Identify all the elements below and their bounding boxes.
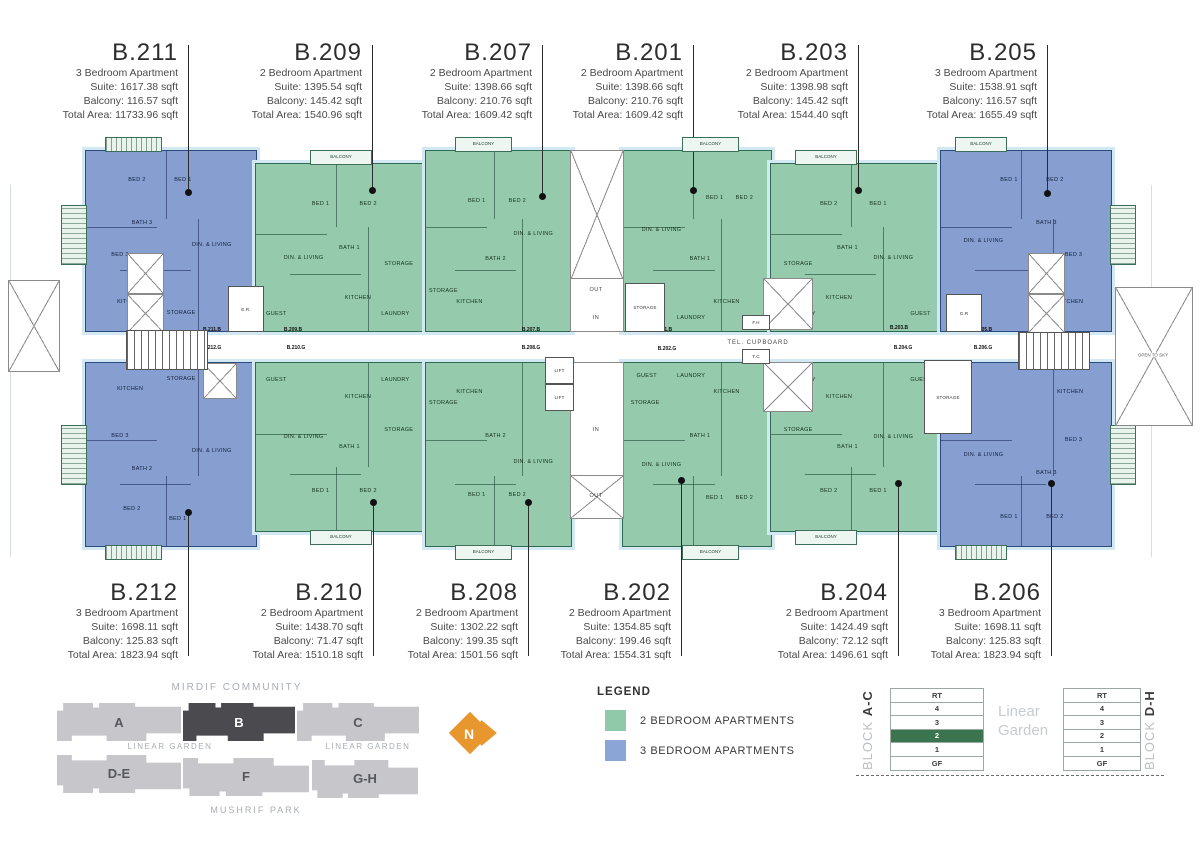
unit-id-label: B.208 <box>348 580 518 606</box>
unit-door-label: B.210.G <box>287 345 306 351</box>
room-label: DIN. & LIVING <box>284 255 324 261</box>
floor-row-rt: RT <box>1064 689 1140 703</box>
unit-stat-line: Total Area: 1554.31 sqft <box>501 648 671 662</box>
room-label: STORAGE <box>784 261 813 267</box>
unit-stat-line: 2 Bedroom Apartment <box>513 66 683 80</box>
partition-wall <box>336 164 337 227</box>
room-label: KITCHEN <box>826 394 852 400</box>
room-label: BED 1 <box>1000 514 1017 520</box>
room-label: LAUNDRY <box>381 311 409 317</box>
unit-stat-line: Balcony: 210.76 sqft <box>362 94 532 108</box>
room-label: BED 2 <box>509 198 526 204</box>
room-label: BED 2 <box>359 201 376 207</box>
leader-dot <box>690 187 697 194</box>
room-label: BED 1 <box>468 198 485 204</box>
leader-dot <box>369 187 376 194</box>
unit-stat-line: Total Area: 1501.56 sqft <box>348 648 518 662</box>
partition-wall <box>166 151 167 219</box>
room-label: KITCHEN <box>345 295 371 301</box>
partition-wall <box>120 484 191 485</box>
unit-stat-line: 3 Bedroom Apartment <box>8 606 178 620</box>
balcony-tab: BALCONY <box>955 137 1007 152</box>
unit-stat-line: 2 Bedroom Apartment <box>193 606 363 620</box>
room-label: STORAGE <box>384 261 413 267</box>
legend-swatch <box>605 710 626 731</box>
balcony-tab: BALCONY <box>455 545 512 560</box>
room-label: BED 3 <box>1065 437 1082 443</box>
room-label: BED 2 <box>123 506 140 512</box>
unit-stat-line: Balcony: 116.57 sqft <box>8 94 178 108</box>
unit-info-b204: B.2042 Bedroom ApartmentSuite: 1424.49 s… <box>718 580 888 662</box>
leader-dot <box>185 509 192 516</box>
room-label: KITCHEN <box>456 299 482 305</box>
room-label: DIN. & LIVING <box>874 434 914 440</box>
leader-line <box>1047 45 1048 193</box>
partition-wall <box>771 434 842 435</box>
unit-stat-line: 2 Bedroom Apartment <box>348 606 518 620</box>
balcony-tab <box>1110 205 1136 265</box>
room-label: STORAGE <box>631 400 660 406</box>
unit-id-label: B.201 <box>513 40 683 66</box>
room-label: DIN. & LIVING <box>964 238 1004 244</box>
open-to-sky-box <box>127 253 164 294</box>
room-label: LAUNDRY <box>677 373 705 379</box>
partition-wall <box>494 151 495 219</box>
service-box-lift: LIFT <box>545 384 574 411</box>
unit-stat-line: Total Area: 1609.42 sqft <box>513 108 683 122</box>
unit-stat-line: 2 Bedroom Apartment <box>362 66 532 80</box>
room-label: BED 2 <box>128 177 145 183</box>
balcony-tab <box>955 545 1007 560</box>
staircase-right <box>1018 332 1090 370</box>
room-label: STORAGE <box>167 376 196 382</box>
partition-wall <box>1053 363 1054 476</box>
room-label: LAUNDRY <box>677 315 705 321</box>
linear-garden-label: LinearGarden <box>998 702 1048 740</box>
partition-wall <box>1021 151 1022 219</box>
unit-stat-line: Total Area: 1544.40 sqft <box>678 108 848 122</box>
unit-stat-line: Balcony: 72.12 sqft <box>718 634 888 648</box>
partition-wall <box>198 363 199 476</box>
room-label: KITCHEN <box>345 394 371 400</box>
partition-wall <box>290 474 361 475</box>
partition-wall <box>198 219 199 331</box>
partition-wall <box>941 440 1012 441</box>
balcony-tab <box>61 425 87 485</box>
partition-wall <box>653 484 715 485</box>
room-label: BED 1 <box>706 495 723 501</box>
unit-stat-line: Balcony: 199.35 sqft <box>348 634 518 648</box>
unit-stat-line: 3 Bedroom Apartment <box>8 66 178 80</box>
balcony-tab: BALCONY <box>682 137 739 152</box>
unit-stat-line: Total Area: 1510.18 sqft <box>193 648 363 662</box>
room-label: BATH 1 <box>837 245 858 251</box>
partition-wall <box>975 484 1046 485</box>
room-label: BED 2 <box>736 495 753 501</box>
floor-row-gf: GF <box>891 757 983 771</box>
room-label: BED 1 <box>706 195 723 201</box>
room-label: BATH 2 <box>132 466 153 472</box>
unit-id-label: B.209 <box>192 40 362 66</box>
open-to-sky-box <box>203 363 237 399</box>
open-to-sky-box <box>1028 253 1065 294</box>
open-to-sky-label: OPEN TO SKY <box>1136 353 1170 358</box>
unit-b209: BED 1BED 2BATH 1DIN. & LIVINGSTORAGEKITC… <box>255 163 427 332</box>
room-label: BED 1 <box>1000 177 1017 183</box>
unit-stat-line: Balcony: 145.42 sqft <box>192 94 362 108</box>
room-label: KITCHEN <box>456 389 482 395</box>
partition-wall <box>86 440 157 441</box>
unit-stat-line: Suite: 1395.54 sqft <box>192 80 362 94</box>
leader-dot <box>185 189 192 196</box>
unit-stat-line: Total Area: 1823.94 sqft <box>8 648 178 662</box>
open-to-sky-box <box>1028 294 1065 333</box>
unit-id-label: B.206 <box>871 580 1041 606</box>
partition-wall <box>805 474 876 475</box>
shaft-out-label-2: OUT <box>589 493 602 499</box>
partition-wall <box>721 363 722 476</box>
unit-stat-line: 2 Bedroom Apartment <box>192 66 362 80</box>
partition-wall <box>653 270 715 271</box>
room-label: GUEST <box>266 311 286 317</box>
room-label: DIN. & LIVING <box>513 231 553 237</box>
balcony-tab <box>61 205 87 265</box>
partition-wall <box>256 234 327 235</box>
unit-id-label: B.210 <box>193 580 363 606</box>
partition-wall <box>883 363 884 467</box>
service-box-tc: T.C <box>742 349 770 364</box>
unit-stat-line: Balcony: 145.42 sqft <box>678 94 848 108</box>
unit-stat-line: Balcony: 71.47 sqft <box>193 634 363 648</box>
unit-stat-line: Suite: 1698.11 sqft <box>871 620 1041 634</box>
partition-wall <box>851 467 852 531</box>
room-label: DIN. & LIVING <box>964 452 1004 458</box>
room-label: BATH 1 <box>339 444 360 450</box>
unit-stat-line: Suite: 1538.91 sqft <box>867 80 1037 94</box>
legend-label: 3 BEDROOM APARTMENTS <box>640 745 795 757</box>
site-map-garden-left-label: LINEAR GARDEN <box>128 742 213 751</box>
floor-table-right: RT4321GF <box>1063 688 1141 771</box>
leader-dot <box>539 193 546 200</box>
room-label: STORAGE <box>429 288 458 294</box>
unit-stat-line: Balcony: 210.76 sqft <box>513 94 683 108</box>
unit-stat-line: Suite: 1398.98 sqft <box>678 80 848 94</box>
unit-info-b205: B.2053 Bedroom ApartmentSuite: 1538.91 s… <box>867 40 1037 122</box>
room-label: GUEST <box>910 311 930 317</box>
room-label: BED 3 <box>111 433 128 439</box>
leader-line <box>188 45 189 192</box>
legend-title: LEGEND <box>597 686 651 698</box>
service-box-gr: G.R <box>946 294 982 332</box>
unit-info-b210: B.2102 Bedroom ApartmentSuite: 1438.70 s… <box>193 580 363 662</box>
unit-id-label: B.204 <box>718 580 888 606</box>
room-label: KITCHEN <box>713 389 739 395</box>
floor-row-3: 3 <box>891 716 983 730</box>
leader-dot <box>525 499 532 506</box>
unit-b207: BED 1BED 2DIN. & LIVINGBATH 2STORAGEKITC… <box>425 150 572 332</box>
partition-wall <box>1021 476 1022 546</box>
balcony-tab <box>105 545 162 560</box>
room-label: BED 2 <box>509 492 526 498</box>
unit-info-b207: B.2072 Bedroom ApartmentSuite: 1398.66 s… <box>362 40 532 122</box>
unit-stat-line: Suite: 1398.66 sqft <box>513 80 683 94</box>
unit-info-b206: B.2063 Bedroom ApartmentSuite: 1698.11 s… <box>871 580 1041 662</box>
room-label: LAUNDRY <box>381 377 409 383</box>
unit-id-label: B.212 <box>8 580 178 606</box>
room-label: BATH 3 <box>132 220 153 226</box>
unit-door-label: B.207.B <box>522 327 540 333</box>
room-label: STORAGE <box>784 427 813 433</box>
leader-dot <box>895 480 902 487</box>
open-to-sky-box <box>127 294 164 333</box>
unit-stat-line: Suite: 1424.49 sqft <box>718 620 888 634</box>
unit-stat-line: Total Area: 1496.61 sqft <box>718 648 888 662</box>
partition-wall <box>941 227 1012 228</box>
service-box-storage: STORAGE <box>625 283 665 332</box>
partition-wall <box>426 440 487 441</box>
unit-id-label: B.205 <box>867 40 1037 66</box>
shaft-in-label-2: IN <box>593 427 600 433</box>
unit-info-b201: B.2012 Bedroom ApartmentSuite: 1398.66 s… <box>513 40 683 122</box>
unit-stat-line: Total Area: 1823.94 sqft <box>871 648 1041 662</box>
floor-row-rt: RT <box>891 689 983 703</box>
north-arrow: N <box>447 710 507 766</box>
balcony-tab: BALCONY <box>682 545 739 560</box>
partition-wall <box>771 234 842 235</box>
partition-wall <box>721 219 722 331</box>
unit-stat-line: 2 Bedroom Apartment <box>501 606 671 620</box>
unit-stat-line: Balcony: 125.83 sqft <box>8 634 178 648</box>
north-arrow-letter: N <box>464 726 474 742</box>
staircase-left <box>126 330 208 370</box>
unit-info-b203: B.2032 Bedroom ApartmentSuite: 1398.98 s… <box>678 40 848 122</box>
room-label: GUEST <box>266 377 286 383</box>
room-label: KITCHEN <box>117 386 143 392</box>
room-label: DIN. & LIVING <box>192 242 232 248</box>
room-label: DIN. & LIVING <box>642 462 682 468</box>
room-label: KITCHEN <box>713 299 739 305</box>
unit-door-label: B.204.G <box>894 345 913 351</box>
leader-line <box>1051 483 1052 656</box>
floor-row-4: 4 <box>1064 703 1140 717</box>
partition-wall <box>851 164 852 227</box>
partition-wall <box>623 440 685 441</box>
partition-wall <box>693 476 694 546</box>
floor-row-4: 4 <box>891 703 983 717</box>
shaft-in-label: IN <box>593 315 600 321</box>
leader-dot <box>678 477 685 484</box>
unit-stat-line: 2 Bedroom Apartment <box>678 66 848 80</box>
floor-row-1: 1 <box>891 743 983 757</box>
room-label: STORAGE <box>429 400 458 406</box>
floor-row-gf: GF <box>1064 757 1140 771</box>
unit-stat-line: Total Area: 1609.42 sqft <box>362 108 532 122</box>
leader-dot <box>1048 480 1055 487</box>
partition-wall <box>336 467 337 531</box>
unit-door-label: B.203.B <box>890 325 908 331</box>
partition-wall <box>455 484 516 485</box>
unit-stat-line: Suite: 1398.66 sqft <box>362 80 532 94</box>
room-label: BED 1 <box>169 516 186 522</box>
room-label: BED 1 <box>869 488 886 494</box>
room-label: BED 2 <box>359 488 376 494</box>
service-box-er: E.R. <box>228 286 264 332</box>
unit-door-label: B.206.G <box>974 345 993 351</box>
floor-row-1: 1 <box>1064 743 1140 757</box>
service-box-lift: LIFT <box>545 357 574 384</box>
unit-stat-line: Balcony: 116.57 sqft <box>867 94 1037 108</box>
room-label: BED 2 <box>820 201 837 207</box>
unit-door-label: B.209.B <box>284 327 302 333</box>
floor-row-2: 2 <box>1064 730 1140 744</box>
partition-wall <box>368 363 369 467</box>
partition-wall <box>455 270 516 271</box>
unit-stat-line: Suite: 1354.85 sqft <box>501 620 671 634</box>
unit-stat-line: Total Area: 1540.96 sqft <box>192 108 362 122</box>
leader-dot <box>855 187 862 194</box>
legend-label: 2 BEDROOM APARTMENTS <box>640 715 795 727</box>
partition-wall <box>166 476 167 546</box>
room-label: STORAGE <box>167 310 196 316</box>
leader-line <box>858 45 859 190</box>
unit-stat-line: 3 Bedroom Apartment <box>871 606 1041 620</box>
unit-info-b208: B.2082 Bedroom ApartmentSuite: 1302.22 s… <box>348 580 518 662</box>
unit-stat-line: Suite: 1617.38 sqft <box>8 80 178 94</box>
room-label: BED 1 <box>312 201 329 207</box>
floor-row-2: 2 <box>891 730 983 744</box>
balcony-tab <box>1110 425 1136 485</box>
unit-stat-line: 2 Bedroom Apartment <box>718 606 888 620</box>
site-map-community-label: MIRDIF COMMUNITY <box>172 682 303 693</box>
room-label: BED 1 <box>468 492 485 498</box>
unit-info-b211: B.2113 Bedroom ApartmentSuite: 1617.38 s… <box>8 40 178 122</box>
balcony-tab: BALCONY <box>455 137 512 152</box>
shaft-bottom-upper <box>570 362 624 477</box>
partition-wall <box>426 227 487 228</box>
room-label: KITCHEN <box>826 295 852 301</box>
unit-stat-line: Suite: 1698.11 sqft <box>8 620 178 634</box>
unit-stat-line: 3 Bedroom Apartment <box>867 66 1037 80</box>
balcony-tab: BALCONY <box>795 530 857 545</box>
room-label: BATH 1 <box>690 433 711 439</box>
room-label: BED 3 <box>1065 252 1082 258</box>
room-label: BATH 1 <box>837 444 858 450</box>
floor-table-left-block-label: BLOCK A-C <box>860 688 875 770</box>
unit-id-label: B.202 <box>501 580 671 606</box>
service-box-storage: STORAGE <box>924 360 972 434</box>
unit-info-b202: B.2022 Bedroom ApartmentSuite: 1354.85 s… <box>501 580 671 662</box>
room-label: DIN. & LIVING <box>642 227 682 233</box>
room-label: BED 2 <box>820 488 837 494</box>
room-label: BATH 1 <box>339 245 360 251</box>
unit-b210: GUESTLAUNDRYKITCHENSTORAGEBATH 1DIN. & L… <box>255 362 427 532</box>
unit-stat-line: Suite: 1302.22 sqft <box>348 620 518 634</box>
room-label: BED 1 <box>312 488 329 494</box>
leader-line <box>681 480 682 656</box>
unit-stat-line: Suite: 1438.70 sqft <box>193 620 363 634</box>
unit-b202: GUESTLAUNDRYSTORAGEKITCHENBATH 1DIN. & L… <box>622 362 772 547</box>
room-label: BATH 2 <box>485 256 506 262</box>
legend-swatch <box>605 740 626 761</box>
room-label: DIN. & LIVING <box>513 459 553 465</box>
unit-stat-line: Balcony: 125.83 sqft <box>871 634 1041 648</box>
floor-table-left: RT4321GF <box>890 688 984 771</box>
unit-info-b212: B.2123 Bedroom ApartmentSuite: 1698.11 s… <box>8 580 178 662</box>
site-map-park-label: MUSHRIF PARK <box>210 805 301 815</box>
unit-info-b209: B.2092 Bedroom ApartmentSuite: 1395.54 s… <box>192 40 362 122</box>
room-label: DIN. & LIVING <box>874 255 914 261</box>
shaft-top-open-cross <box>570 150 624 280</box>
unit-stat-line: Total Area: 11733.96 sqft <box>8 108 178 122</box>
room-label: BED 2 <box>1046 177 1063 183</box>
room-label: KITCHEN <box>1057 389 1083 395</box>
balcony-tab: BALCONY <box>310 530 372 545</box>
leader-dot <box>370 499 377 506</box>
balcony-tab <box>105 137 162 152</box>
tel-cupboard-label: TEL. CUPBOARD <box>727 340 788 346</box>
legend-item: 3 BEDROOM APARTMENTS <box>605 740 795 761</box>
room-label: GUEST <box>636 373 656 379</box>
floor-plan-page: BED 2BED 1BATH 3BED 3DIN. & LIVINGKITCHE… <box>0 0 1200 848</box>
unit-id-label: B.203 <box>678 40 848 66</box>
room-label: BED 2 <box>1046 514 1063 520</box>
room-label: DIN. & LIVING <box>192 448 232 454</box>
room-label: BATH 3 <box>1036 470 1057 476</box>
ground-dash-line <box>856 775 1164 776</box>
room-label: STORAGE <box>384 427 413 433</box>
shaft-out-label: OUT <box>589 287 602 293</box>
leader-dot <box>1044 190 1051 197</box>
room-label: BATH 3 <box>1036 220 1057 226</box>
room-label: BATH 2 <box>485 433 506 439</box>
unit-door-label: B.208.G <box>522 345 541 351</box>
partition-wall <box>494 476 495 546</box>
balcony-tab: BALCONY <box>795 150 857 165</box>
partition-wall <box>805 274 876 275</box>
leader-line <box>188 512 189 656</box>
room-label: BATH 1 <box>690 256 711 262</box>
unit-stat-line: Balcony: 199.46 sqft <box>501 634 671 648</box>
room-label: DIN. & LIVING <box>284 434 324 440</box>
unit-id-label: B.207 <box>362 40 532 66</box>
partition-wall <box>368 227 369 331</box>
partition-wall <box>290 274 361 275</box>
balcony-tab: BALCONY <box>310 150 372 165</box>
legend-item: 2 BEDROOM APARTMENTS <box>605 710 795 731</box>
partition-wall <box>883 227 884 331</box>
partition-wall <box>86 227 157 228</box>
room-label: BED 2 <box>736 195 753 201</box>
unit-id-label: B.211 <box>8 40 178 66</box>
floor-table-right-block-label: BLOCK D-H <box>1142 688 1157 770</box>
unit-stat-line: Total Area: 1655.49 sqft <box>867 108 1037 122</box>
service-box-fh: F.H <box>742 315 770 330</box>
open-to-sky-box <box>8 280 60 372</box>
site-map-garden-right-label: LINEAR GARDEN <box>326 742 411 751</box>
room-label: BED 1 <box>869 201 886 207</box>
open-to-sky-box <box>763 278 813 330</box>
unit-door-label: B.202.G <box>658 346 677 352</box>
open-to-sky-box <box>763 362 813 412</box>
floor-row-3: 3 <box>1064 716 1140 730</box>
